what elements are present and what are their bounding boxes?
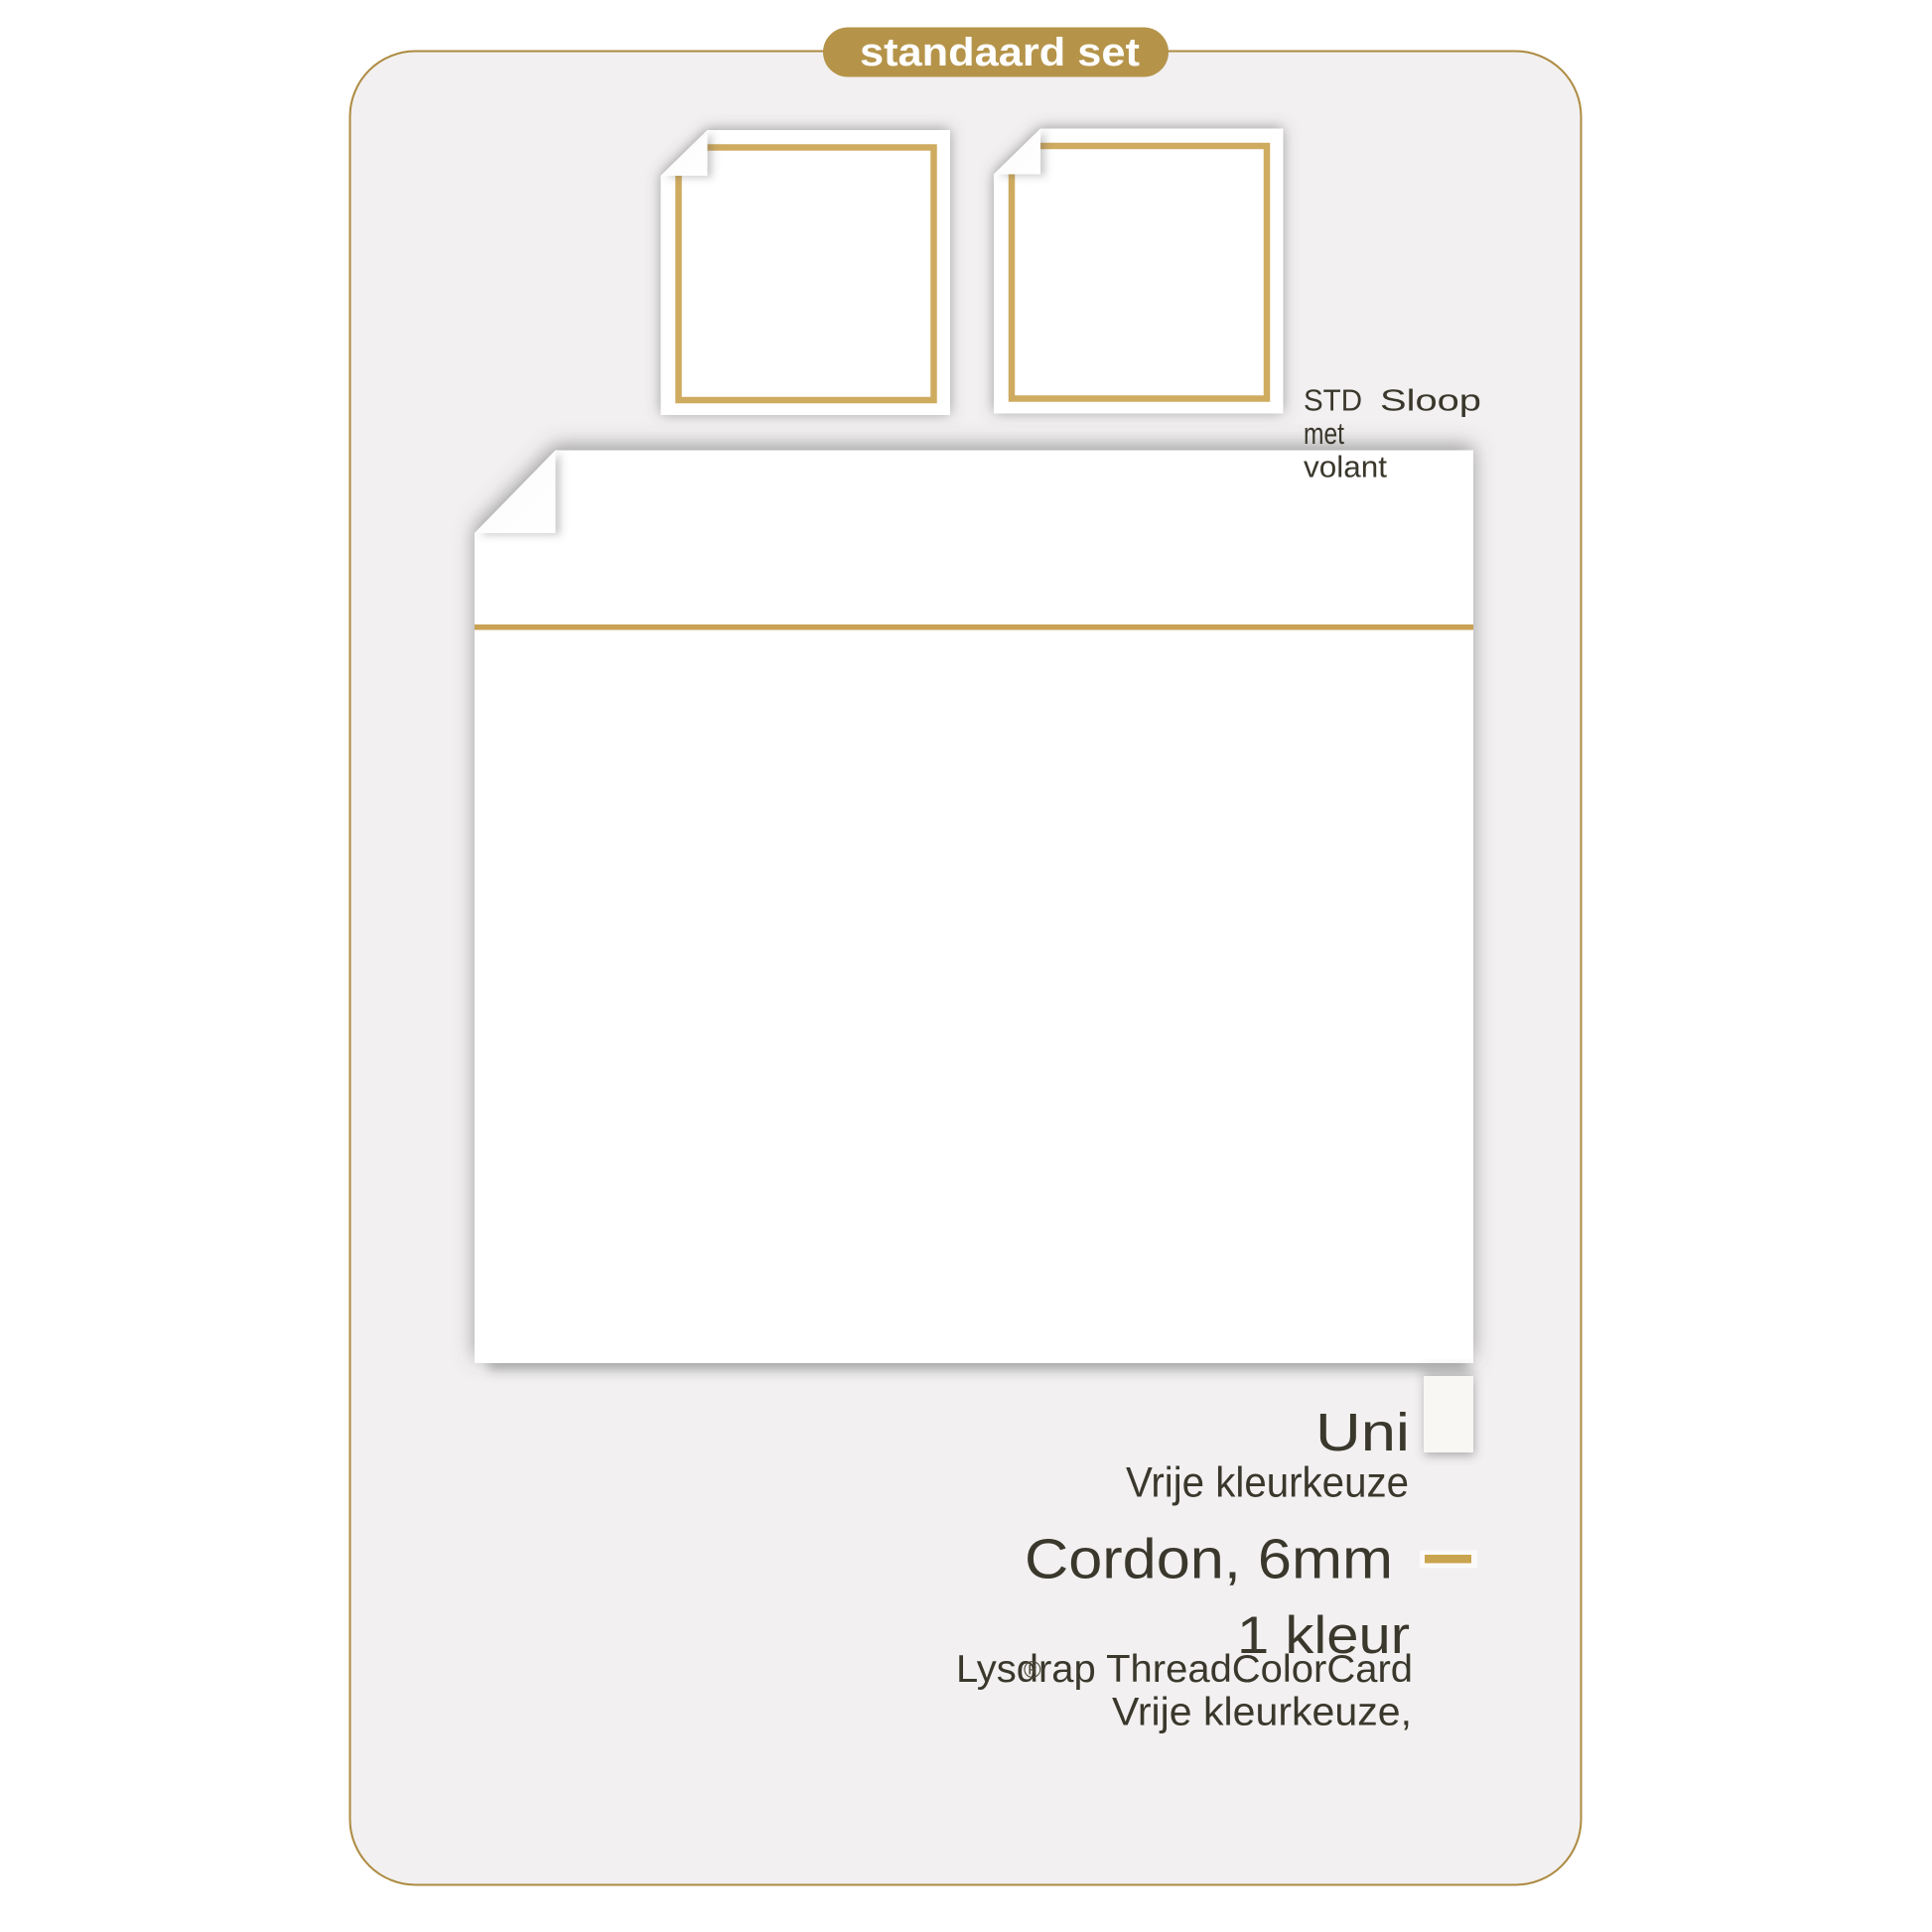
svg-text:Vrije kleurkeuze: Vrije kleurkeuze [1126, 1459, 1409, 1507]
svg-text:Uni: Uni [1315, 1403, 1410, 1462]
svg-text:®: ® [1024, 1657, 1041, 1684]
svg-text:standaard set: standaard set [860, 31, 1140, 74]
svg-text:STD: STD [1304, 383, 1362, 418]
svg-text:Sloop: Sloop [1380, 383, 1481, 418]
svg-text:Vrije kleurkeuze,: Vrije kleurkeuze, [1112, 1691, 1412, 1734]
svg-text:met: met [1304, 416, 1344, 451]
svg-text:volant: volant [1304, 450, 1387, 484]
svg-text:Cordon, 6mm: Cordon, 6mm [1025, 1528, 1393, 1591]
